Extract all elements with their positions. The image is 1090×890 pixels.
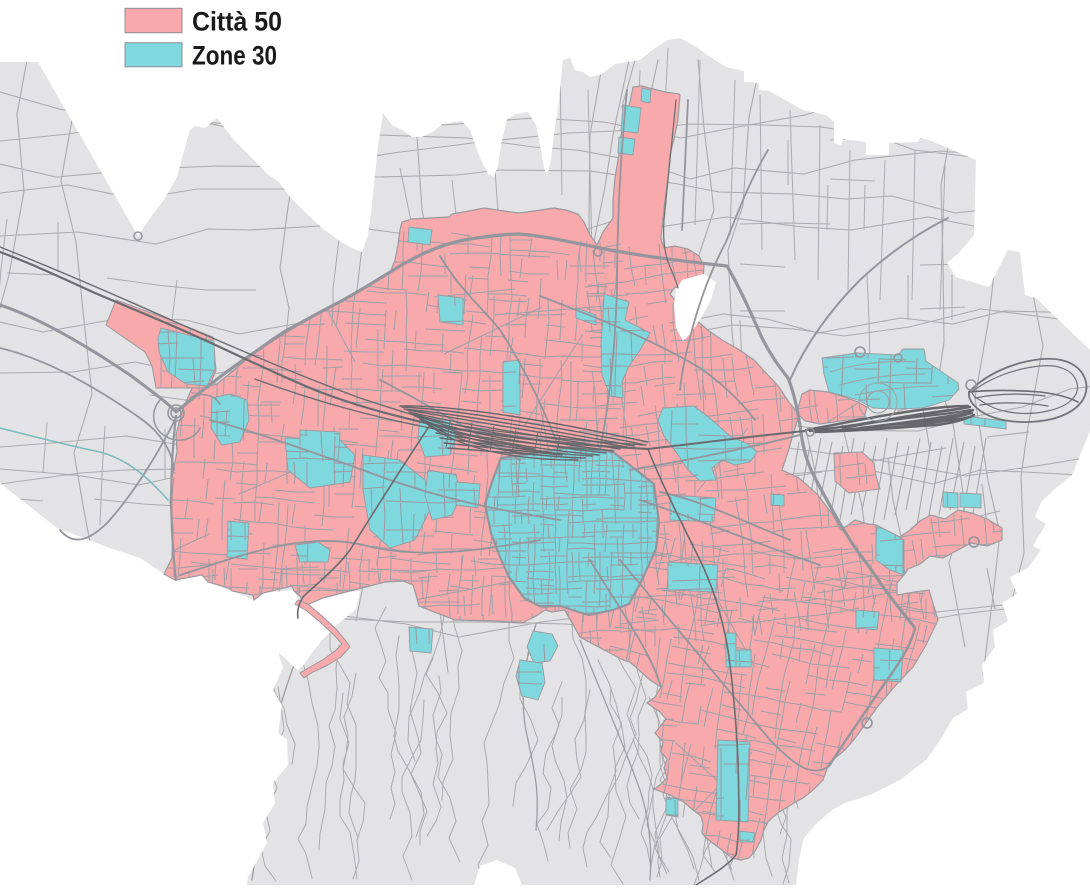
- svg-text:Città 50: Città 50: [192, 7, 282, 37]
- svg-text:Zone 30: Zone 30: [192, 41, 277, 71]
